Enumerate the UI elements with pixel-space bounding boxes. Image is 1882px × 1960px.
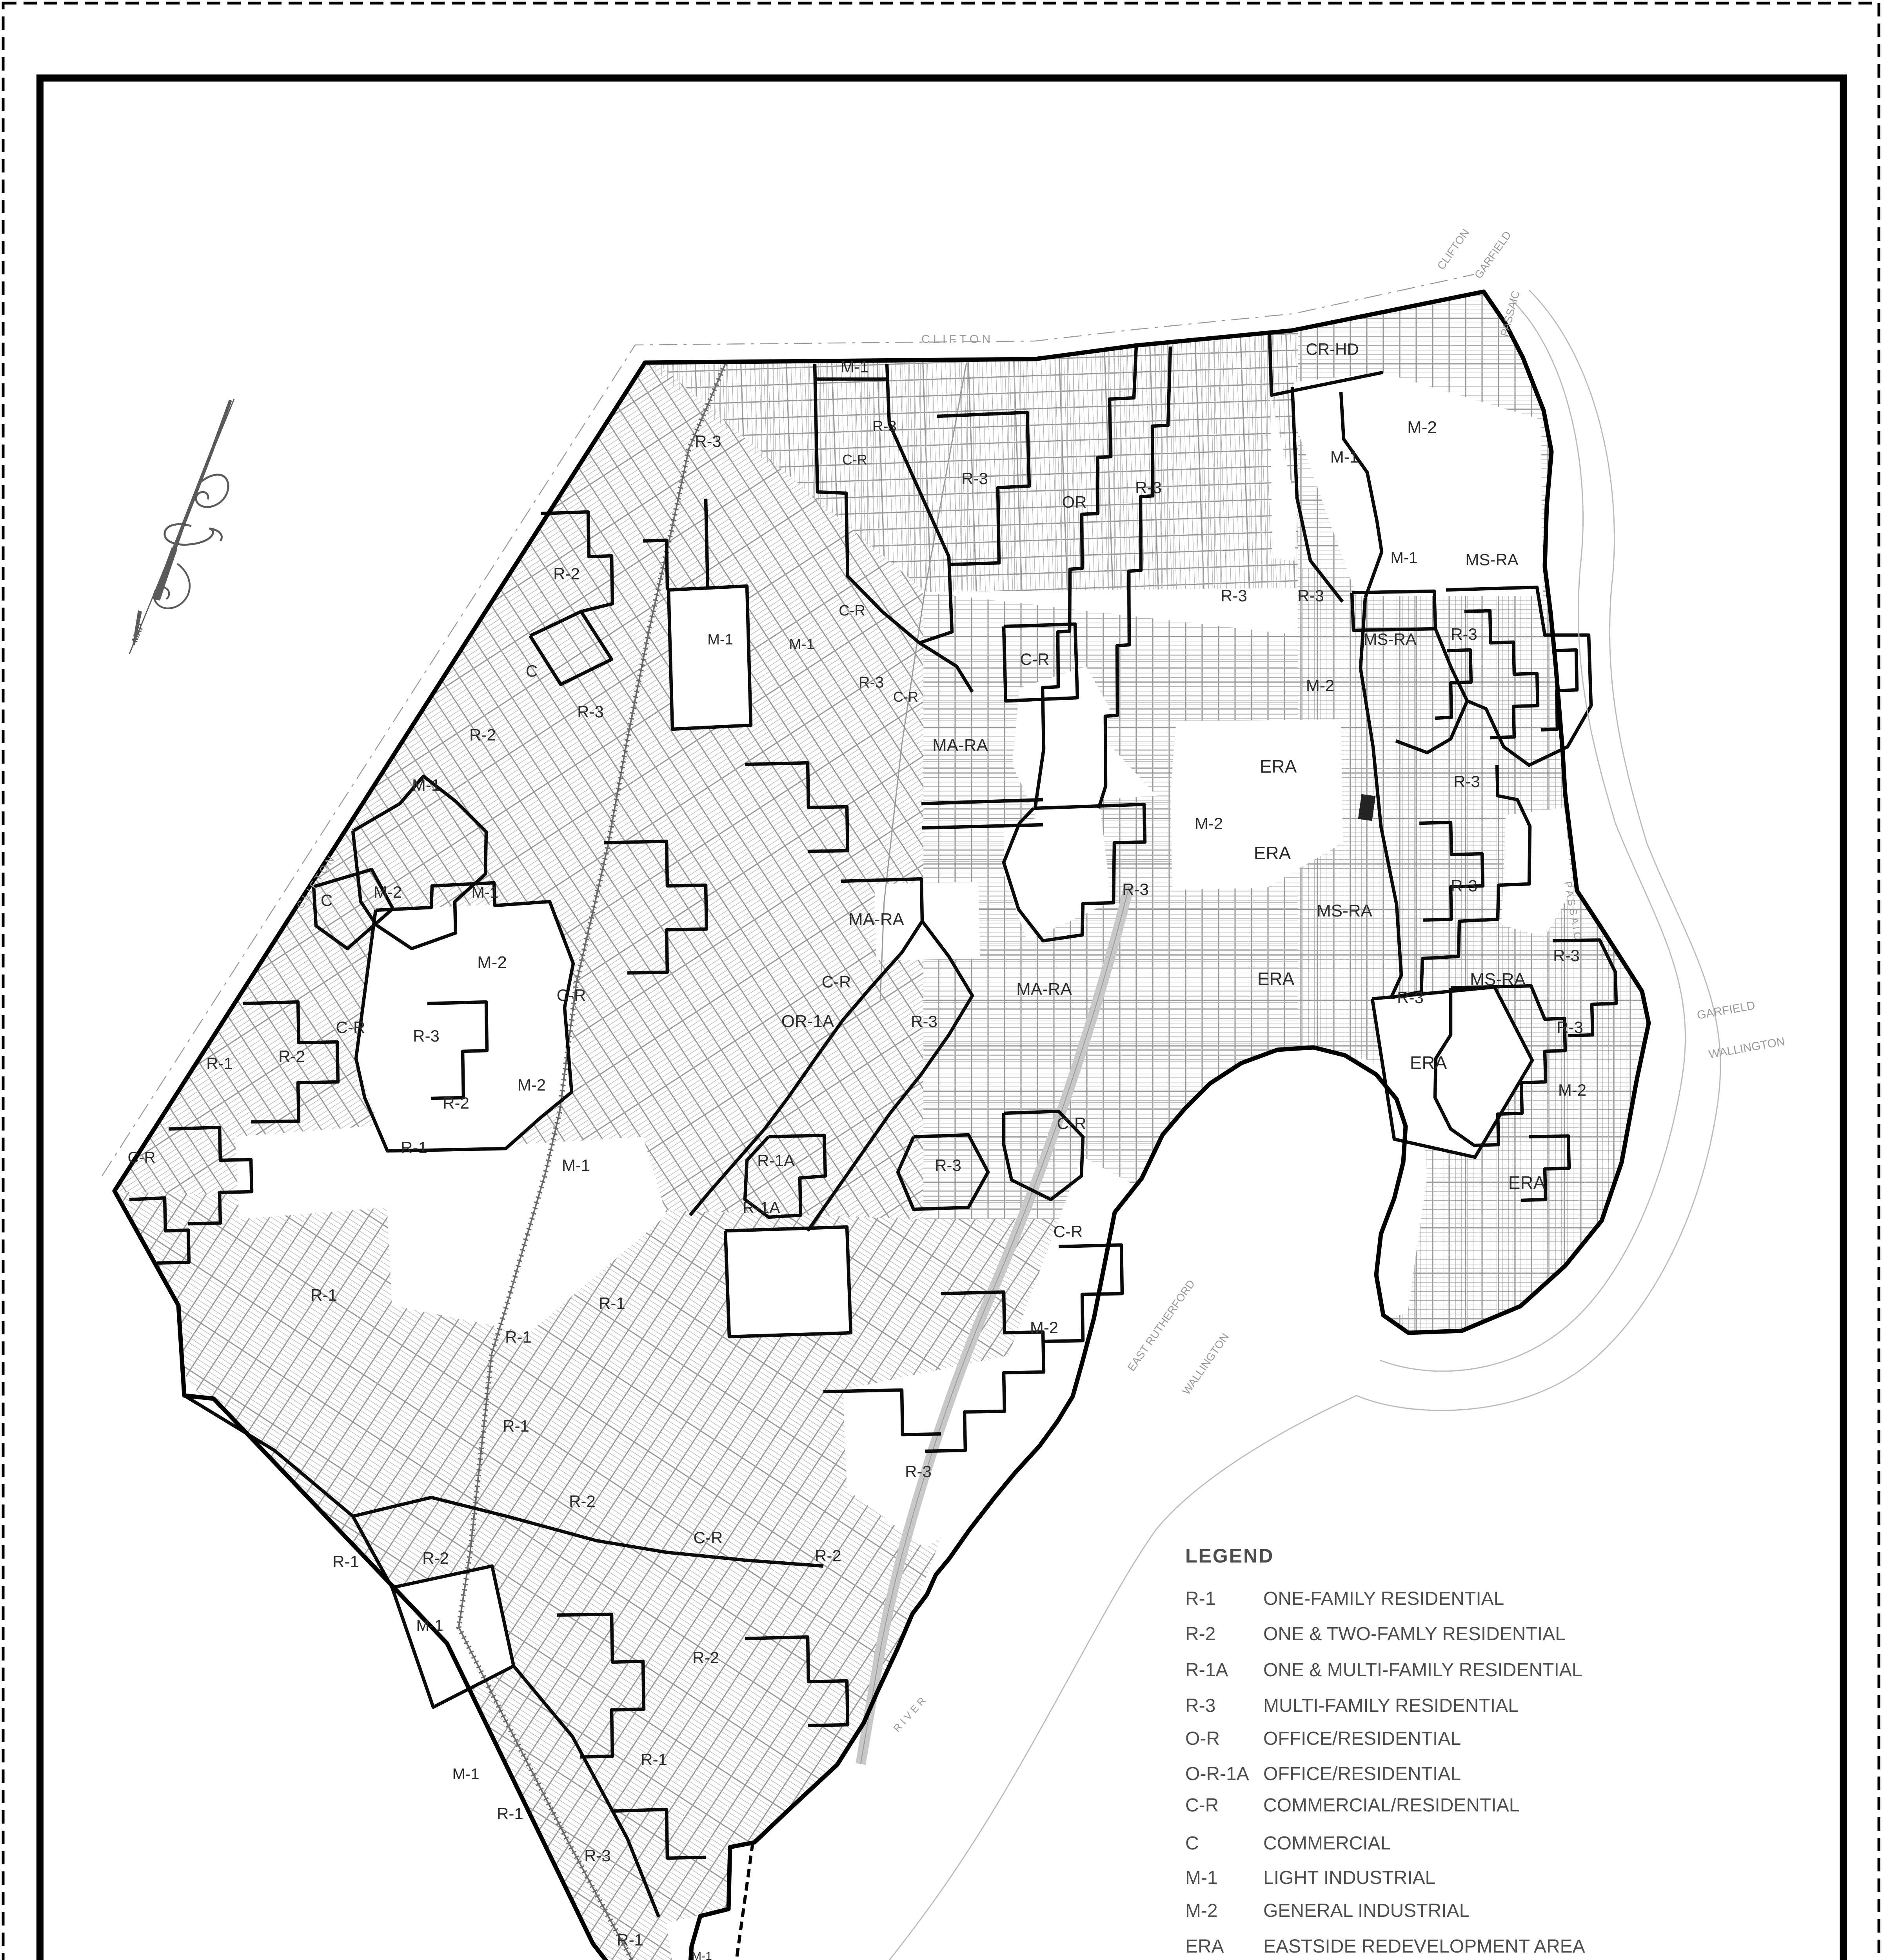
svg-text:COMMERCIAL: COMMERCIAL xyxy=(1263,1833,1391,1854)
svg-text:R-1: R-1 xyxy=(505,1328,532,1346)
svg-text:R-3: R-3 xyxy=(911,1012,937,1031)
svg-text:R-3: R-3 xyxy=(413,1027,440,1045)
svg-text:OR-1A: OR-1A xyxy=(781,1012,834,1031)
svg-text:OFFICE/RESIDENTIAL: OFFICE/RESIDENTIAL xyxy=(1263,1728,1461,1749)
svg-text:R-3: R-3 xyxy=(577,702,604,721)
svg-text:GENERAL INDUSTRIAL: GENERAL INDUSTRIAL xyxy=(1263,1900,1470,1921)
svg-text:M-2: M-2 xyxy=(477,953,507,972)
svg-text:MULTI-FAMILY RESIDENTIAL: MULTI-FAMILY RESIDENTIAL xyxy=(1263,1695,1519,1716)
svg-text:MS-RA: MS-RA xyxy=(1363,630,1416,648)
svg-text:M-1: M-1 xyxy=(452,1766,480,1783)
svg-text:M-1: M-1 xyxy=(841,358,869,376)
svg-text:C-R: C-R xyxy=(1054,1222,1083,1241)
svg-text:C: C xyxy=(1185,1833,1199,1854)
svg-text:R-1A: R-1A xyxy=(1185,1660,1228,1681)
svg-text:MS-RA: MS-RA xyxy=(1470,970,1526,989)
svg-text:R-1: R-1 xyxy=(206,1054,233,1073)
svg-text:R-3: R-3 xyxy=(935,1156,961,1174)
svg-text:R-2: R-2 xyxy=(278,1047,305,1065)
svg-text:C-R: C-R xyxy=(822,973,851,991)
svg-text:R-2: R-2 xyxy=(443,1094,469,1112)
svg-text:R-3: R-3 xyxy=(1135,478,1162,497)
svg-text:M-2: M-2 xyxy=(1558,1081,1586,1099)
svg-text:R-1: R-1 xyxy=(599,1294,625,1312)
svg-text:C-R: C-R xyxy=(1185,1795,1219,1816)
svg-text:R-3: R-3 xyxy=(1122,880,1149,898)
svg-text:LEGEND: LEGEND xyxy=(1185,1545,1274,1567)
svg-text:R-1: R-1 xyxy=(641,1750,667,1769)
svg-text:R-1: R-1 xyxy=(1185,1588,1215,1609)
svg-text:ONE & MULTI-FAMILY RESIDENTIAL: ONE & MULTI-FAMILY RESIDENTIAL xyxy=(1263,1660,1582,1681)
svg-text:C: C xyxy=(526,662,538,680)
svg-text:R-3: R-3 xyxy=(1553,946,1580,965)
svg-text:M-1: M-1 xyxy=(1330,448,1359,466)
svg-text:MS-RA: MS-RA xyxy=(1317,901,1372,920)
svg-text:R-3: R-3 xyxy=(1397,988,1424,1007)
svg-text:ONE-FAMILY RESIDENTIAL: ONE-FAMILY RESIDENTIAL xyxy=(1263,1588,1504,1609)
svg-text:R-2: R-2 xyxy=(1185,1624,1215,1644)
svg-text:M-2: M-2 xyxy=(1195,814,1223,833)
svg-text:OFFICE/RESIDENTIAL: OFFICE/RESIDENTIAL xyxy=(1263,1764,1461,1784)
svg-text:ONE & TWO-FAMLY RESIDENTIAL: ONE & TWO-FAMLY RESIDENTIAL xyxy=(1263,1624,1566,1644)
svg-text:R-3: R-3 xyxy=(961,469,988,488)
svg-text:M-1: M-1 xyxy=(789,636,814,653)
svg-text:R-1A: R-1A xyxy=(743,1198,780,1217)
svg-text:R-1: R-1 xyxy=(311,1286,337,1304)
svg-text:M-1: M-1 xyxy=(707,632,733,648)
svg-text:R-3: R-3 xyxy=(872,418,896,435)
svg-text:MA-RA: MA-RA xyxy=(1016,980,1072,999)
svg-text:EASTSIDE REDEVELOPMENT AREA: EASTSIDE REDEVELOPMENT AREA xyxy=(1263,1936,1585,1957)
svg-text:C: C xyxy=(321,891,332,909)
svg-text:CR-HD: CR-HD xyxy=(1306,340,1359,358)
svg-text:R-2: R-2 xyxy=(553,564,580,583)
svg-text:R-3: R-3 xyxy=(1453,772,1480,791)
svg-text:M-2: M-2 xyxy=(1306,676,1334,695)
svg-text:M-2: M-2 xyxy=(1030,1318,1058,1337)
svg-text:C-R: C-R xyxy=(893,689,918,705)
svg-text:R-3: R-3 xyxy=(1185,1695,1215,1716)
svg-text:R-3: R-3 xyxy=(1451,625,1477,643)
svg-text:C-R: C-R xyxy=(1057,1114,1086,1132)
svg-text:M-2: M-2 xyxy=(518,1076,546,1094)
svg-text:R-1: R-1 xyxy=(332,1552,359,1571)
svg-text:COMMERCIAL/RESIDENTIAL: COMMERCIAL/RESIDENTIAL xyxy=(1263,1795,1519,1816)
svg-text:ERA: ERA xyxy=(1254,843,1291,863)
svg-text:M-1: M-1 xyxy=(472,884,499,901)
svg-text:R-1A: R-1A xyxy=(757,1151,795,1170)
svg-text:R-2: R-2 xyxy=(569,1492,596,1510)
svg-text:R-3: R-3 xyxy=(695,432,721,450)
svg-text:M-2: M-2 xyxy=(1407,418,1437,437)
svg-text:R-3: R-3 xyxy=(1297,586,1324,605)
svg-text:C-R: C-R xyxy=(839,603,865,619)
svg-text:O-R-1A: O-R-1A xyxy=(1185,1764,1249,1784)
svg-text:R-3: R-3 xyxy=(1221,586,1247,605)
svg-text:ERA: ERA xyxy=(1410,1053,1447,1073)
svg-text:R-3: R-3 xyxy=(1557,1018,1583,1036)
svg-text:M-2: M-2 xyxy=(1185,1900,1218,1921)
svg-text:M-1: M-1 xyxy=(1391,549,1418,566)
svg-text:LIGHT INDUSTRIAL: LIGHT INDUSTRIAL xyxy=(1263,1867,1435,1888)
svg-text:C L I F T O N: C L I F T O N xyxy=(921,333,990,346)
svg-text:R-3: R-3 xyxy=(1451,877,1477,895)
svg-text:M-1: M-1 xyxy=(1185,1867,1218,1888)
svg-text:M-2: M-2 xyxy=(374,883,402,901)
svg-text:C-R: C-R xyxy=(1020,650,1050,668)
svg-text:R-3: R-3 xyxy=(859,674,884,691)
svg-text:R-3: R-3 xyxy=(905,1462,932,1481)
svg-text:OR: OR xyxy=(1062,493,1087,511)
svg-text:MA-RA: MA-RA xyxy=(848,910,904,929)
svg-text:M-1: M-1 xyxy=(412,776,440,794)
svg-text:C-R: C-R xyxy=(127,1149,155,1166)
svg-text:R-3: R-3 xyxy=(584,1846,611,1865)
svg-text:ERA: ERA xyxy=(1508,1172,1546,1193)
svg-text:M-1: M-1 xyxy=(562,1156,590,1174)
svg-text:C-R: C-R xyxy=(842,452,867,468)
svg-text:C-R: C-R xyxy=(557,986,586,1004)
svg-text:ERA: ERA xyxy=(1260,756,1297,777)
svg-text:R-1: R-1 xyxy=(401,1138,427,1157)
svg-text:R-2: R-2 xyxy=(692,1648,719,1667)
svg-text:M-1: M-1 xyxy=(692,1950,712,1960)
svg-text:R-1: R-1 xyxy=(497,1804,523,1823)
svg-text:M-1: M-1 xyxy=(416,1617,443,1634)
svg-text:C-R: C-R xyxy=(694,1528,723,1547)
svg-text:ERA: ERA xyxy=(1257,969,1295,989)
svg-text:MA-RA: MA-RA xyxy=(932,736,988,755)
svg-text:R-2: R-2 xyxy=(469,726,496,744)
svg-text:R-1: R-1 xyxy=(617,1931,643,1949)
svg-text:MS-RA: MS-RA xyxy=(1465,550,1518,569)
svg-text:ERA: ERA xyxy=(1185,1936,1224,1957)
svg-text:R-1: R-1 xyxy=(503,1417,529,1435)
svg-text:R-2: R-2 xyxy=(815,1546,841,1565)
svg-text:O-R: O-R xyxy=(1185,1728,1220,1749)
svg-text:C-R: C-R xyxy=(336,1018,365,1036)
svg-text:R-2: R-2 xyxy=(422,1549,449,1567)
